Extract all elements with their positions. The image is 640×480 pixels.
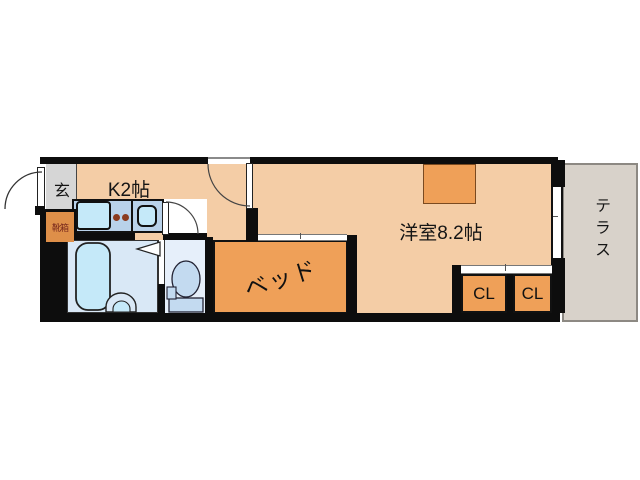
wall-closet-left [452,265,461,313]
entrance-label: 玄 [48,177,76,201]
bed-area: ベッド [213,240,348,314]
door-opening-line [208,157,250,159]
toilet-door-opening [158,240,165,284]
closet-left: CL [461,274,507,313]
closet-left-label: CL [473,284,495,304]
kitchen-stove-top-icon [137,205,157,227]
toilet-room-floor [165,240,207,313]
terrace-label: テラス [588,197,612,263]
sliding-door-closets [461,265,552,274]
entrance-door-leaf [37,167,45,210]
floor-plan: 靴箱 ベッド CL CL 玄 K2帖 洋室8.2帖 テラス [0,0,640,480]
wall-top-left [40,157,208,164]
washroom-door-leaf [162,202,169,235]
window-terrace [551,187,563,258]
bathroom-floor [67,240,158,313]
wall-right-upper [551,160,565,187]
wall-right-lower [551,258,565,313]
wall-top-right [250,157,558,164]
wall-kitchen-stub [246,208,258,241]
stove-burner-icon [113,214,120,221]
wall-bottom [40,313,560,322]
room-door-leaf [246,163,253,209]
wall-bed-right [347,235,357,322]
counter-divider [131,200,133,232]
shoebox-label: 靴箱 [52,221,68,234]
wall-left-lower [40,240,67,322]
wall-toilet-top [163,233,207,240]
wall-bed-left [205,237,213,322]
stove-burner-icon [122,214,129,221]
kitchen-label: K2帖 [94,175,164,202]
entrance-door-hinge [35,206,45,215]
wall-toilet-left [158,284,165,313]
bed-label: ベッド [240,250,322,304]
kitchen-sink-icon [76,201,111,230]
closet-right: CL [513,274,552,313]
hallway-floor [164,199,207,233]
sliding-door-bed [258,234,347,241]
wall-under-counter [67,233,135,240]
closet-right-label: CL [522,284,544,304]
counter-desk [423,164,476,204]
shoe-cabinet: 靴箱 [46,212,74,242]
western-room-label: 洋室8.2帖 [380,218,502,245]
